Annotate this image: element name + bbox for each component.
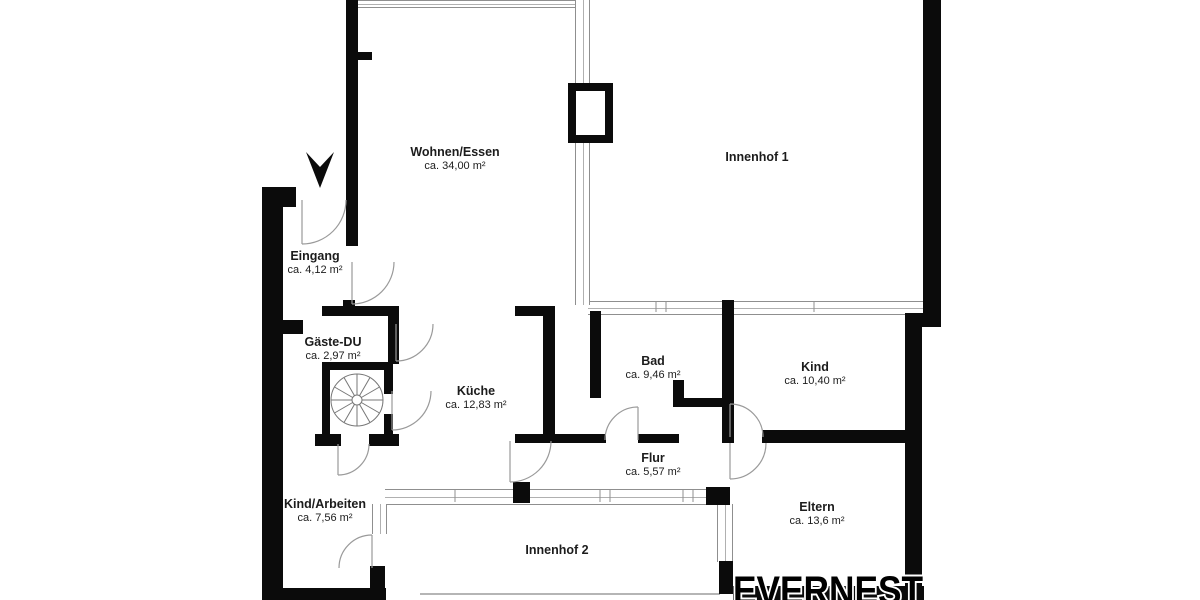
room-label-flur: Flur ca. 5,57 m²: [625, 452, 680, 479]
wall-segment: [343, 300, 355, 308]
wall-segment: [358, 52, 372, 60]
door-arc: [605, 407, 638, 440]
wall-segment: [315, 434, 341, 446]
room-label-kind-arbeiten: Kind/Arbeiten ca. 7,56 m²: [284, 498, 366, 525]
room-label-eingang: Eingang ca. 4,12 m²: [287, 250, 342, 277]
window: [588, 301, 923, 315]
wall-segment: [388, 306, 399, 364]
room-name: Eingang: [287, 250, 342, 263]
room-name: Flur: [625, 452, 680, 465]
room-name: Innenhof 1: [725, 151, 788, 164]
wall-segment: [513, 482, 530, 503]
wall-segment: [369, 434, 399, 446]
room-label-eltern: Eltern ca. 13,6 m²: [789, 501, 844, 528]
door-arc: [730, 443, 766, 479]
room-label-innenhof-2: Innenhof 2: [525, 544, 588, 557]
room-area: ca. 13,6 m²: [789, 515, 844, 528]
room-name: Bad: [625, 355, 680, 368]
door-arc: [396, 324, 433, 361]
wall-segment: [638, 434, 679, 443]
wall-segment: [719, 561, 733, 594]
room-label-innenhof-1: Innenhof 1: [725, 151, 788, 164]
room-area: ca. 34,00 m²: [410, 160, 499, 173]
room-label-kind: Kind ca. 10,40 m²: [784, 361, 845, 388]
door-arc: [392, 391, 431, 430]
wall-segment: [262, 320, 303, 334]
wall-segment: [515, 434, 606, 443]
room-name: Kind: [784, 361, 845, 374]
room-area: ca. 2,97 m²: [305, 350, 362, 363]
room-label-kueche: Küche ca. 12,83 m²: [445, 385, 506, 412]
chimney-core: [576, 91, 605, 135]
room-name: Küche: [445, 385, 506, 398]
wall-segment: [262, 187, 283, 600]
window: [372, 504, 387, 534]
door-arc: [338, 444, 369, 475]
room-area: ca. 5,57 m²: [625, 466, 680, 479]
window: [358, 0, 579, 8]
wall-segment: [543, 313, 555, 435]
wall-segment: [515, 306, 555, 316]
window: [575, 142, 590, 305]
wall-segment: [905, 313, 922, 600]
wall-segment: [384, 362, 393, 394]
room-label-gaeste-du: Gäste-DU ca. 2,97 m²: [305, 336, 362, 363]
wall-segment: [262, 588, 386, 600]
spiral-staircase: [331, 374, 383, 426]
wall-segment: [322, 362, 392, 370]
room-area: ca. 7,56 m²: [284, 512, 366, 525]
window: [420, 593, 720, 595]
door-arc: [339, 535, 372, 568]
room-name: Eltern: [789, 501, 844, 514]
wall-segment: [322, 362, 330, 442]
room-area: ca. 10,40 m²: [784, 375, 845, 388]
room-name: Innenhof 2: [525, 544, 588, 557]
window: [575, 0, 590, 84]
window: [385, 489, 707, 505]
floor-plan: Wohnen/Essen ca. 34,00 m² Innenhof 1 Ein…: [0, 0, 1200, 600]
room-name: Kind/Arbeiten: [284, 498, 366, 511]
door-arc: [352, 262, 394, 304]
entrance-arrow-icon: [306, 152, 334, 188]
room-area: ca. 9,46 m²: [625, 369, 680, 382]
door-arc: [510, 441, 551, 482]
wall-segment: [762, 430, 906, 443]
room-label-wohnen-essen: Wohnen/Essen ca. 34,00 m²: [410, 146, 499, 173]
wall-segment: [346, 0, 358, 246]
wall-segment: [733, 586, 924, 600]
door-arc: [302, 200, 346, 244]
wall-segment: [706, 487, 730, 505]
wall-segment: [923, 0, 941, 320]
wall-segment: [590, 311, 601, 398]
wall-segment: [370, 566, 385, 590]
window: [717, 504, 733, 562]
room-name: Gäste-DU: [305, 336, 362, 349]
door-arc: [730, 404, 763, 437]
room-area: ca. 12,83 m²: [445, 399, 506, 412]
wall-segment: [722, 300, 734, 443]
room-label-bad: Bad ca. 9,46 m²: [625, 355, 680, 382]
room-area: ca. 4,12 m²: [287, 264, 342, 277]
room-name: Wohnen/Essen: [410, 146, 499, 159]
